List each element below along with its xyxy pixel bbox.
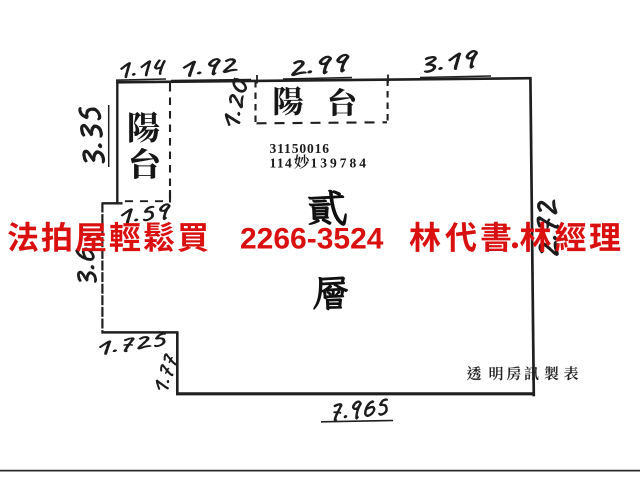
svg-text:139784: 139784 — [311, 156, 370, 171]
svg-text:114: 114 — [270, 156, 294, 171]
svg-text:2266-3524: 2266-3524 — [240, 223, 384, 256]
svg-text:31150016: 31150016 — [270, 141, 330, 156]
